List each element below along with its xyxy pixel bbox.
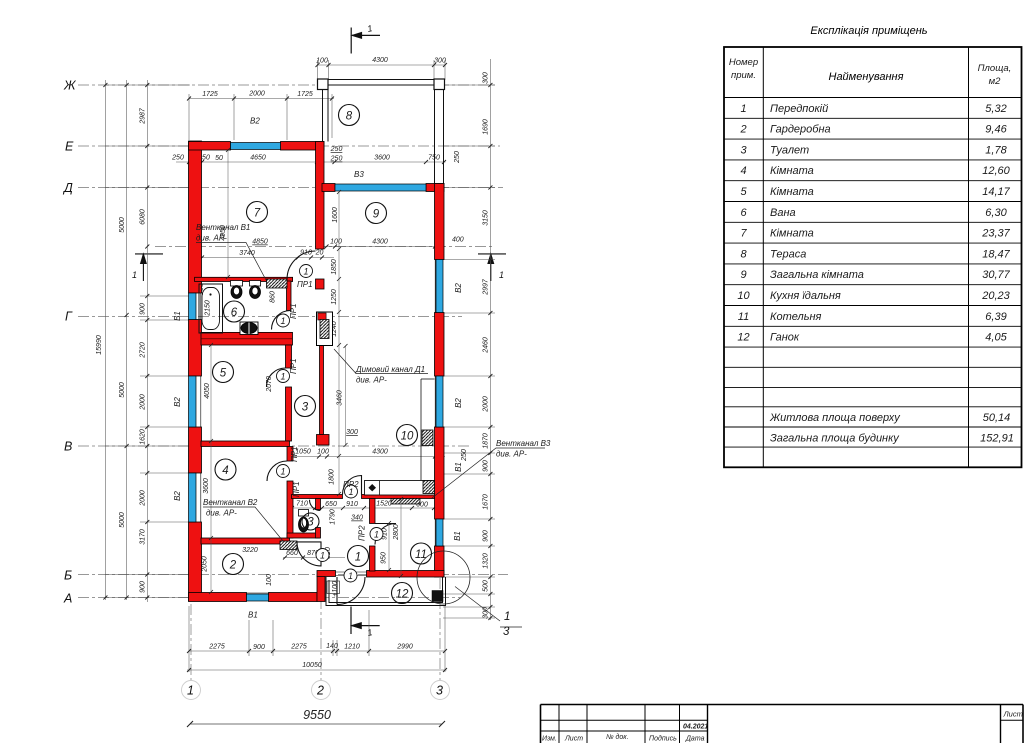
svg-text:1: 1 (303, 267, 308, 277)
svg-text:1690: 1690 (482, 119, 489, 135)
svg-text:1870: 1870 (482, 433, 489, 449)
svg-text:15990: 15990 (96, 335, 103, 355)
svg-text:1: 1 (187, 684, 194, 698)
svg-text:1800: 1800 (329, 469, 336, 485)
svg-text:Кухня їдальня: Кухня їдальня (770, 290, 841, 302)
svg-text:3220: 3220 (242, 547, 258, 554)
svg-text:В1: В1 (248, 611, 258, 620)
svg-text:9: 9 (740, 269, 746, 281)
svg-text:1: 1 (280, 467, 285, 477)
svg-text:6,30: 6,30 (985, 207, 1007, 219)
svg-text:250: 250 (171, 155, 184, 162)
svg-text:8: 8 (346, 111, 353, 123)
svg-text:1: 1 (320, 551, 325, 561)
svg-text:152,91: 152,91 (980, 432, 1014, 444)
svg-text:Котельня: Котельня (770, 311, 822, 323)
svg-text:7: 7 (740, 228, 747, 240)
svg-text:2800: 2800 (393, 524, 400, 541)
svg-text:ПР1: ПР1 (292, 481, 301, 497)
svg-text:4300: 4300 (372, 57, 388, 64)
svg-text:12,60: 12,60 (982, 165, 1010, 177)
svg-text:950: 950 (381, 552, 388, 564)
svg-text:1670: 1670 (482, 494, 489, 510)
svg-text:1520: 1520 (376, 501, 392, 508)
svg-text:2720: 2720 (140, 342, 147, 359)
svg-text:3: 3 (307, 517, 314, 529)
svg-text:5000: 5000 (119, 217, 126, 233)
svg-text:12: 12 (737, 332, 749, 344)
svg-text:ПР2: ПР2 (343, 480, 359, 489)
svg-text:10: 10 (401, 431, 414, 443)
svg-text:ПР1: ПР1 (289, 303, 298, 319)
svg-text:1600: 1600 (332, 207, 339, 223)
svg-text:1: 1 (280, 316, 285, 326)
svg-text:50: 50 (215, 155, 223, 162)
svg-text:Гардеробна: Гардеробна (770, 124, 831, 136)
svg-text:Е: Е (65, 140, 74, 154)
svg-text:3: 3 (503, 626, 510, 638)
svg-text:2460: 2460 (482, 337, 489, 354)
svg-text:3170: 3170 (140, 529, 147, 545)
svg-text:В2: В2 (454, 283, 463, 293)
svg-text:Ганок: Ганок (770, 332, 800, 344)
svg-text:Експлікація приміщень: Експлікація приміщень (810, 25, 927, 37)
svg-text:див. АР-: див. АР- (196, 234, 227, 243)
svg-text:3150: 3150 (482, 210, 489, 226)
svg-text:4,05: 4,05 (985, 332, 1007, 344)
svg-text:1: 1 (499, 270, 504, 280)
svg-text:№ док.: № док. (606, 733, 629, 741)
svg-text:Номер: Номер (729, 57, 758, 68)
svg-text:5: 5 (740, 186, 747, 198)
svg-text:див. АР-: див. АР- (206, 509, 237, 518)
svg-text:Загальна площа будинку: Загальна площа будинку (770, 432, 900, 444)
svg-text:Вентканал В1: Вентканал В1 (196, 223, 250, 232)
svg-text:1250: 1250 (331, 289, 338, 305)
svg-text:Житлова площа поверху: Житлова площа поверху (769, 412, 901, 424)
svg-text:2997: 2997 (482, 278, 489, 296)
svg-text:5: 5 (220, 368, 227, 380)
svg-text:11: 11 (738, 311, 749, 323)
svg-text:250: 250 (461, 449, 468, 462)
svg-text:1850: 1850 (331, 259, 338, 275)
svg-text:100: 100 (330, 239, 342, 246)
svg-text:1: 1 (355, 552, 361, 564)
svg-text:100: 100 (316, 58, 328, 65)
svg-text:6: 6 (231, 307, 238, 319)
svg-text:5000: 5000 (119, 382, 126, 398)
svg-text:Подпись: Подпись (649, 735, 677, 743)
svg-text:В2: В2 (173, 397, 182, 407)
svg-text:140: 140 (326, 643, 338, 650)
svg-text:6080: 6080 (140, 209, 147, 225)
svg-text:2990: 2990 (396, 644, 413, 651)
svg-text:ПР1: ПР1 (297, 280, 313, 289)
svg-text:В3: В3 (354, 170, 364, 179)
svg-text:В2: В2 (173, 491, 182, 501)
svg-text:10050: 10050 (302, 662, 322, 669)
svg-text:Дата: Дата (685, 736, 705, 743)
svg-text:300: 300 (482, 72, 489, 84)
svg-text:3: 3 (740, 144, 747, 156)
svg-text:3: 3 (436, 684, 443, 698)
svg-text:10: 10 (737, 290, 750, 302)
svg-text:В2: В2 (454, 398, 463, 408)
svg-text:400: 400 (452, 237, 464, 244)
svg-text:В: В (64, 440, 72, 454)
svg-text:2275: 2275 (290, 644, 307, 651)
svg-text:900: 900 (482, 460, 489, 472)
svg-text:В1: В1 (453, 531, 462, 541)
svg-text:100: 100 (266, 574, 273, 586)
svg-text:1: 1 (504, 611, 510, 623)
svg-text:1,78: 1,78 (985, 144, 1007, 156)
svg-text:4050: 4050 (204, 383, 211, 399)
svg-text:Вентканал В2: Вентканал В2 (203, 498, 258, 507)
svg-text:Димовий канал Д1: Димовий канал Д1 (355, 365, 425, 374)
svg-text:4650: 4650 (250, 155, 266, 162)
svg-text:660: 660 (286, 550, 298, 557)
svg-text:Вентканал В3: Вентканал В3 (496, 439, 551, 448)
svg-text:1: 1 (132, 270, 137, 280)
svg-text:1210: 1210 (344, 644, 360, 651)
svg-text:2: 2 (316, 684, 324, 698)
svg-text:Б: Б (64, 569, 72, 583)
svg-text:250: 250 (330, 156, 343, 163)
svg-text:710: 710 (296, 501, 308, 508)
svg-text:900: 900 (140, 303, 147, 315)
svg-text:Г: Г (65, 310, 73, 324)
svg-text:1: 1 (348, 571, 353, 581)
svg-text:6: 6 (740, 207, 747, 219)
svg-text:3600: 3600 (374, 155, 390, 162)
svg-text:100: 100 (317, 449, 329, 456)
svg-text:Лист: Лист (564, 736, 583, 743)
svg-text:50,14: 50,14 (983, 412, 1011, 424)
svg-text:20: 20 (315, 250, 324, 257)
svg-text:900: 900 (140, 581, 147, 593)
svg-text:6,39: 6,39 (985, 311, 1006, 323)
svg-text:5,32: 5,32 (985, 103, 1006, 115)
svg-text:4850: 4850 (252, 239, 268, 246)
svg-text:300: 300 (482, 607, 489, 619)
svg-text:див. АР-: див. АР- (496, 450, 527, 459)
svg-text:18,47: 18,47 (982, 248, 1010, 260)
svg-text:30,77: 30,77 (982, 269, 1010, 281)
svg-text:910: 910 (346, 501, 358, 508)
svg-text:Вана: Вана (770, 207, 796, 219)
svg-text:2: 2 (229, 560, 237, 572)
svg-text:див. АР-: див. АР- (356, 376, 387, 385)
svg-text:4: 4 (222, 465, 228, 477)
svg-text:В1: В1 (454, 462, 463, 472)
svg-text:1725: 1725 (202, 91, 218, 98)
svg-text:9550: 9550 (303, 708, 331, 722)
svg-text:04.2021: 04.2021 (683, 724, 708, 731)
svg-text:прим.: прим. (731, 70, 756, 81)
svg-text:2275: 2275 (208, 644, 225, 651)
svg-text:м2: м2 (989, 76, 1002, 87)
svg-text:900: 900 (482, 530, 489, 542)
svg-text:300: 300 (434, 58, 446, 65)
svg-text:20,23: 20,23 (981, 290, 1010, 302)
svg-text:1790: 1790 (330, 509, 337, 525)
svg-text:860: 860 (270, 291, 277, 303)
svg-text:7: 7 (254, 208, 261, 220)
svg-text:1: 1 (740, 103, 746, 115)
svg-text:2000: 2000 (140, 394, 147, 411)
svg-text:3740: 3740 (239, 250, 255, 257)
svg-text:Площа,: Площа, (978, 63, 1012, 74)
svg-text:500: 500 (482, 580, 489, 592)
svg-text:Найменування: Найменування (829, 71, 904, 83)
svg-text:А: А (63, 592, 72, 606)
svg-text:3460: 3460 (337, 390, 344, 406)
svg-text:9: 9 (373, 209, 380, 221)
svg-text:650: 650 (325, 501, 337, 508)
svg-text:ПР2: ПР2 (358, 525, 367, 541)
svg-text:Кімната: Кімната (770, 228, 814, 240)
svg-text:1320: 1320 (482, 553, 489, 569)
svg-text:Лист: Лист (1003, 710, 1023, 719)
svg-text:Кімната: Кімната (770, 186, 814, 198)
svg-text:1620: 1620 (140, 429, 147, 445)
svg-text:1725: 1725 (297, 91, 313, 98)
svg-text:Передпокій: Передпокій (770, 103, 828, 115)
svg-text:9,46: 9,46 (985, 124, 1007, 136)
svg-text:900: 900 (253, 644, 265, 651)
svg-text:2150: 2150 (205, 300, 212, 317)
svg-text:11: 11 (415, 549, 427, 561)
svg-text:2000: 2000 (248, 91, 265, 98)
svg-text:1: 1 (374, 530, 379, 540)
svg-text:5000: 5000 (119, 512, 126, 528)
svg-text:Загальна кімната: Загальна кімната (770, 269, 864, 281)
svg-text:250: 250 (330, 146, 343, 153)
svg-text:Тераса: Тераса (770, 248, 806, 260)
svg-text:Изм.: Изм. (542, 736, 557, 743)
svg-text:12: 12 (396, 589, 409, 601)
svg-text:3: 3 (302, 402, 309, 414)
svg-text:В1: В1 (173, 311, 182, 321)
svg-text:8: 8 (740, 248, 747, 260)
svg-text:Туалет: Туалет (770, 144, 809, 156)
svg-text:2000: 2000 (140, 490, 147, 507)
svg-text:1: 1 (280, 372, 285, 382)
svg-text:14,17: 14,17 (982, 186, 1010, 198)
svg-text:ПР1: ПР1 (290, 446, 299, 462)
svg-text:2050: 2050 (202, 556, 209, 573)
svg-text:4300: 4300 (372, 449, 388, 456)
svg-text:Ж: Ж (63, 79, 77, 93)
svg-text:ПР1: ПР1 (289, 358, 298, 374)
svg-text:340: 340 (351, 515, 363, 522)
svg-text:2: 2 (739, 124, 746, 136)
svg-text:4: 4 (740, 165, 746, 177)
svg-text:3600: 3600 (203, 478, 210, 494)
svg-text:В2: В2 (250, 117, 260, 126)
svg-text:250: 250 (454, 151, 461, 164)
svg-text:2987: 2987 (140, 107, 147, 125)
svg-text:300: 300 (346, 429, 358, 436)
svg-text:Кімната: Кімната (770, 165, 814, 177)
svg-text:Д: Д (62, 181, 73, 195)
svg-text:4300: 4300 (372, 239, 388, 246)
svg-text:2000: 2000 (482, 396, 489, 413)
svg-text:+100: +100 (332, 581, 339, 597)
svg-text:23,37: 23,37 (981, 228, 1010, 240)
